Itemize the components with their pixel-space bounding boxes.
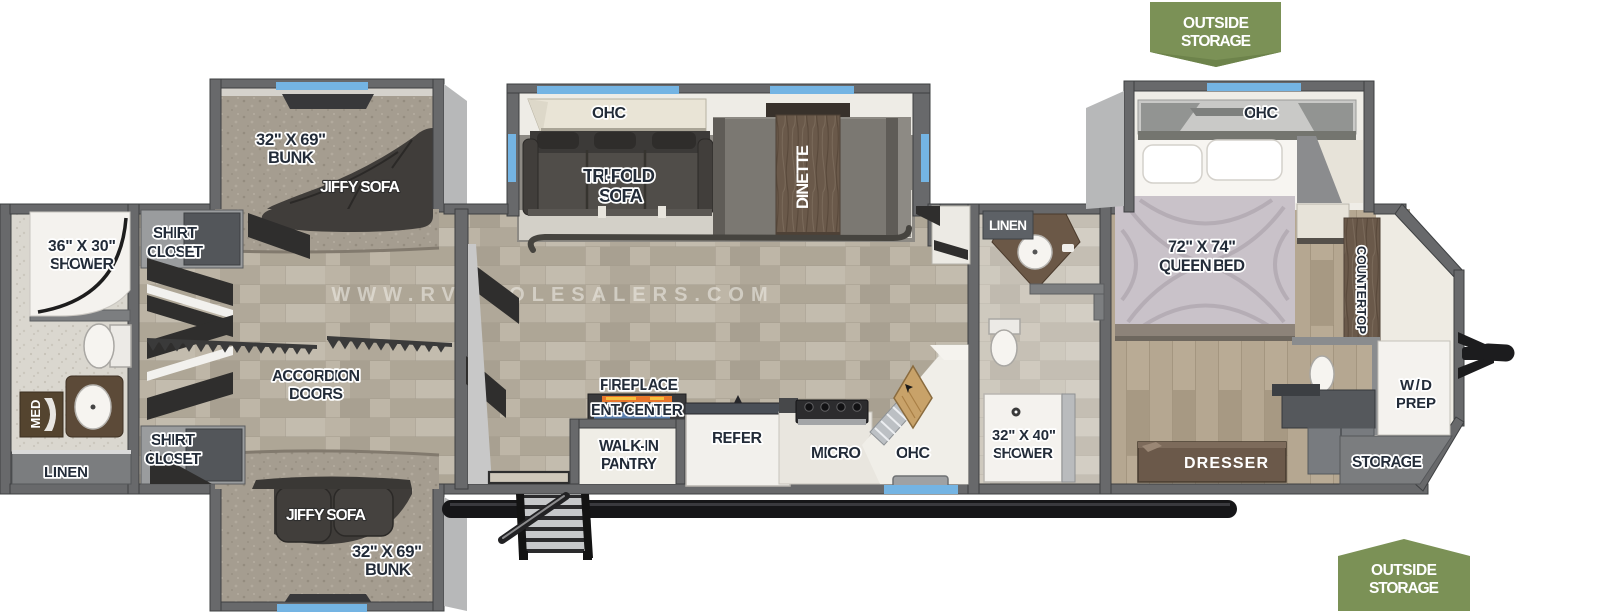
svg-text:PREP: PREP <box>1396 395 1436 412</box>
svg-text:OHC: OHC <box>592 105 626 122</box>
svg-text:COUNTERTOP: COUNTERTOP <box>1354 246 1369 334</box>
svg-text:TRI-FOLD: TRI-FOLD <box>583 165 655 186</box>
svg-text:REFER: REFER <box>712 430 762 447</box>
svg-text:OUTSIDE: OUTSIDE <box>1183 15 1249 32</box>
svg-text:STORAGE: STORAGE <box>1369 580 1439 597</box>
svg-text:ACCORDION: ACCORDION <box>272 368 360 385</box>
svg-text:OHC: OHC <box>896 445 930 462</box>
svg-text:WALK-IN: WALK-IN <box>599 438 659 455</box>
svg-text:CLOSET: CLOSET <box>145 451 201 468</box>
svg-text:SHIRT: SHIRT <box>151 432 195 449</box>
svg-text:DOORS: DOORS <box>289 386 343 403</box>
svg-text:32" X 40": 32" X 40" <box>992 427 1056 444</box>
svg-text:QUEEN BED: QUEEN BED <box>1159 257 1245 275</box>
svg-text:BUNK: BUNK <box>268 148 315 167</box>
svg-text:LINEN: LINEN <box>989 218 1027 233</box>
svg-text:BUNK: BUNK <box>365 560 412 579</box>
svg-text:72" X 74": 72" X 74" <box>1168 238 1236 256</box>
svg-text:LINEN: LINEN <box>44 464 88 481</box>
svg-text:CLOSET: CLOSET <box>147 244 203 261</box>
svg-text:SHOWER: SHOWER <box>993 445 1053 462</box>
svg-text:MED: MED <box>28 400 43 429</box>
svg-text:W/D: W/D <box>1400 377 1432 394</box>
svg-text:OUTSIDE: OUTSIDE <box>1371 562 1437 579</box>
svg-text:FIREPLACE: FIREPLACE <box>600 377 678 394</box>
svg-text:MICRO: MICRO <box>811 445 861 462</box>
svg-text:STORAGE: STORAGE <box>1181 33 1251 50</box>
svg-text:32" X 69": 32" X 69" <box>352 542 422 561</box>
svg-text:OHC: OHC <box>1244 105 1278 122</box>
svg-text:DRESSER: DRESSER <box>1184 455 1268 472</box>
svg-text:JIFFY SOFA: JIFFY SOFA <box>320 179 400 196</box>
svg-text:SHIRT: SHIRT <box>153 225 197 242</box>
svg-text:STORAGE: STORAGE <box>1352 454 1422 471</box>
svg-text:SHOWER: SHOWER <box>50 256 114 273</box>
svg-text:DINETTE: DINETTE <box>794 145 812 209</box>
svg-text:JIFFY SOFA: JIFFY SOFA <box>286 507 366 524</box>
svg-text:32" X 69": 32" X 69" <box>256 130 326 149</box>
svg-text:SOFA: SOFA <box>599 185 643 206</box>
svg-text:WWW.RVWHOLESALERS.COM: WWW.RVWHOLESALERS.COM <box>331 284 774 306</box>
svg-text:ENT. CENTER: ENT. CENTER <box>591 402 683 419</box>
svg-text:PANTRY: PANTRY <box>601 456 658 473</box>
svg-text:36" X 30": 36" X 30" <box>48 238 116 255</box>
